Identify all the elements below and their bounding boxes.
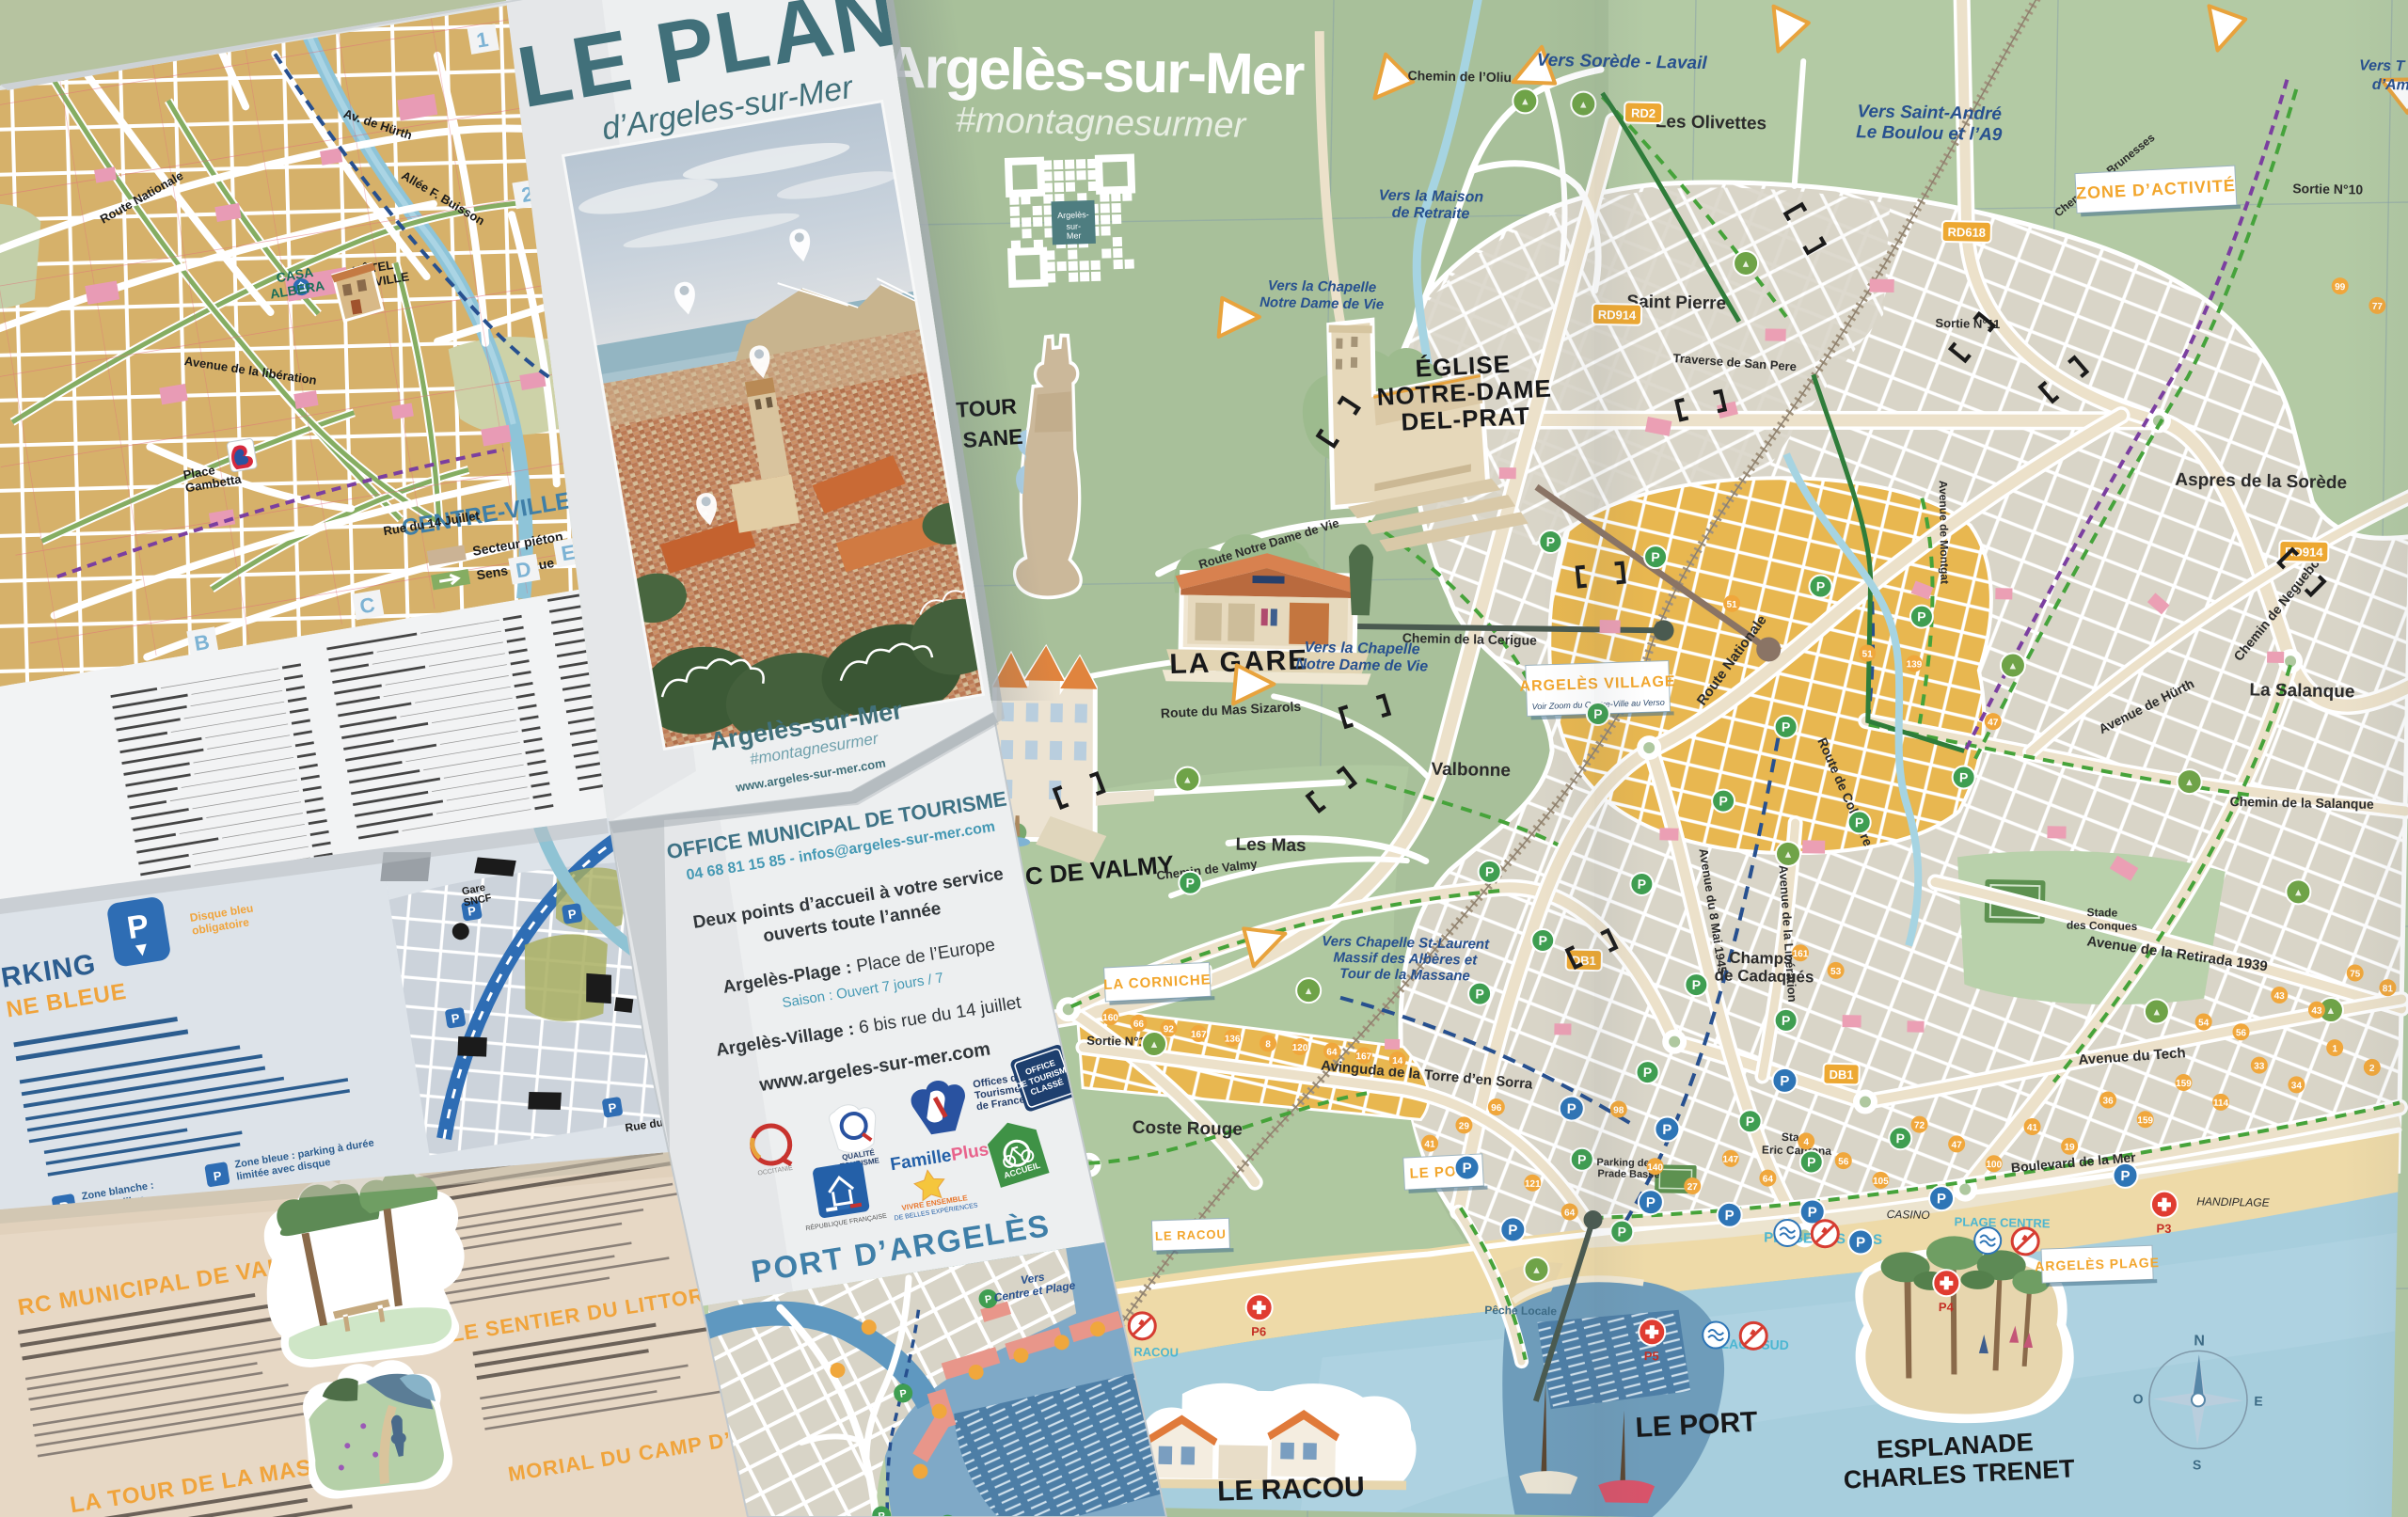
svg-text:▲: ▲	[2325, 1005, 2336, 1017]
svg-text:56: 56	[2236, 1028, 2247, 1038]
svg-text:P3: P3	[2156, 1222, 2171, 1236]
svg-text:56: 56	[1838, 1157, 1849, 1167]
svg-text:36: 36	[2102, 1096, 2114, 1106]
svg-text:27: 27	[1687, 1182, 1699, 1193]
svg-text:53: 53	[1830, 967, 1842, 977]
svg-text:#montagnesurmer: #montagnesurmer	[955, 101, 1246, 146]
svg-text:P: P	[1808, 1205, 1817, 1221]
svg-text:Aspres de la Sorède: Aspres de la Sorède	[2175, 470, 2347, 494]
svg-text:P: P	[1917, 609, 1926, 624]
svg-text:140: 140	[1647, 1162, 1663, 1173]
svg-text:Tour de la Massane: Tour de la Massane	[1339, 966, 1470, 985]
svg-text:92: 92	[1164, 1024, 1175, 1035]
svg-text:114: 114	[2213, 1098, 2229, 1109]
svg-text:14: 14	[1392, 1056, 1403, 1067]
svg-text:51: 51	[1861, 649, 1873, 659]
svg-text:43: 43	[2311, 1006, 2322, 1017]
svg-text:▲: ▲	[1182, 775, 1193, 786]
svg-text:CASINO: CASINO	[1887, 1208, 1930, 1222]
svg-text:33: 33	[2254, 1061, 2265, 1071]
svg-text:41: 41	[2027, 1123, 2038, 1133]
svg-text:19: 19	[2064, 1143, 2075, 1153]
svg-text:64: 64	[1763, 1174, 1774, 1184]
svg-text:▲: ▲	[2293, 887, 2304, 898]
svg-text:▲: ▲	[1304, 986, 1314, 997]
svg-text:des Conques: des Conques	[2067, 919, 2138, 933]
svg-text:P: P	[1651, 549, 1660, 564]
svg-text:121: 121	[1525, 1179, 1541, 1190]
svg-text:167: 167	[1191, 1030, 1207, 1040]
svg-text:47: 47	[1951, 1140, 1962, 1150]
svg-text:▲: ▲	[1520, 96, 1530, 107]
svg-text:51: 51	[1726, 600, 1737, 610]
svg-text:P: P	[1780, 1073, 1789, 1089]
svg-text:P: P	[1692, 977, 1702, 992]
svg-text:▲: ▲	[2151, 1006, 2162, 1018]
svg-text:159: 159	[2176, 1079, 2192, 1089]
svg-text:Mer: Mer	[1067, 230, 1082, 241]
svg-text:4: 4	[1803, 1137, 1809, 1147]
svg-text:▲: ▲	[1741, 259, 1751, 270]
svg-text:de Retraite: de Retraite	[1392, 205, 1470, 223]
svg-text:64: 64	[1326, 1048, 1338, 1058]
svg-text:72: 72	[1914, 1121, 1925, 1131]
svg-text:167: 167	[1355, 1051, 1371, 1062]
svg-text:PLAGE CENTRE: PLAGE CENTRE	[1954, 1214, 2050, 1230]
svg-text:Chemin de l’Oliu: Chemin de l’Oliu	[1407, 68, 1512, 85]
svg-text:1: 1	[2332, 1044, 2337, 1054]
svg-text:O: O	[2132, 1391, 2143, 1406]
svg-text:100: 100	[1986, 1160, 2002, 1170]
svg-text:161: 161	[1793, 949, 1809, 959]
svg-text:LE RACOU: LE RACOU	[1155, 1226, 1227, 1243]
svg-text:147: 147	[1722, 1155, 1738, 1165]
svg-text:Notre Dame de Vie: Notre Dame de Vie	[1259, 294, 1384, 313]
svg-text:P: P	[1782, 1013, 1791, 1028]
svg-text:P: P	[1646, 1195, 1655, 1211]
svg-text:66: 66	[1133, 1019, 1145, 1030]
svg-text:P: P	[1662, 1122, 1671, 1138]
svg-text:P: P	[1719, 794, 1728, 809]
svg-text:136: 136	[1225, 1034, 1241, 1044]
svg-text:N: N	[2194, 1333, 2205, 1349]
svg-text:Chemin de la Cerigue: Chemin de la Cerigue	[1402, 630, 1538, 648]
svg-text:P: P	[1959, 769, 1969, 784]
svg-text:Avenue de Montgat: Avenue de Montgat	[1937, 481, 1952, 584]
svg-text:P: P	[1856, 1235, 1865, 1251]
svg-text:LE RACOU: LE RACOU	[1217, 1472, 1366, 1508]
svg-text:sur-: sur-	[1066, 221, 1081, 231]
svg-text:RD618: RD618	[1947, 225, 1986, 240]
svg-text:E: E	[2254, 1394, 2263, 1409]
svg-text:139: 139	[1906, 659, 1922, 670]
svg-text:▲: ▲	[1782, 849, 1793, 861]
svg-text:120: 120	[1292, 1043, 1308, 1053]
svg-text:54: 54	[2198, 1018, 2210, 1028]
svg-text:159: 159	[2137, 1115, 2153, 1126]
svg-text:Stade: Stade	[2086, 906, 2117, 920]
svg-text:P5: P5	[1644, 1349, 1659, 1363]
svg-text:Le Boulou et l’A9: Le Boulou et l’A9	[1856, 122, 2003, 145]
svg-text:Vers la Chapelle: Vers la Chapelle	[1268, 277, 1377, 295]
svg-text:▲: ▲	[2184, 777, 2194, 788]
svg-text:29: 29	[1459, 1121, 1470, 1131]
svg-text:LE PORT: LE PORT	[1635, 1406, 1759, 1444]
svg-text:Vers Saint-André: Vers Saint-André	[1857, 102, 2002, 124]
svg-text:P: P	[1816, 578, 1826, 593]
svg-text:P: P	[1782, 719, 1791, 735]
svg-text:43: 43	[2274, 991, 2286, 1002]
svg-text:P: P	[1485, 864, 1495, 879]
svg-text:Les Mas: Les Mas	[1235, 835, 1306, 856]
svg-text:41: 41	[1424, 1140, 1435, 1150]
svg-text:P: P	[1186, 876, 1196, 891]
svg-text:P: P	[1724, 1208, 1734, 1224]
svg-text:P: P	[2120, 1168, 2130, 1184]
svg-text:47: 47	[1988, 718, 1999, 728]
svg-text:DB1: DB1	[1829, 1067, 1853, 1082]
svg-text:▲: ▲	[2007, 660, 2018, 672]
svg-text:HANDIPLAGE: HANDIPLAGE	[2196, 1194, 2271, 1209]
svg-text:P: P	[1746, 1114, 1755, 1129]
svg-text:P: P	[1855, 814, 1864, 830]
svg-text:P: P	[1508, 1223, 1517, 1239]
svg-text:P6: P6	[1251, 1324, 1266, 1338]
svg-text:96: 96	[1491, 1103, 1502, 1114]
svg-text:P4: P4	[1939, 1300, 1955, 1314]
svg-text:P: P	[1462, 1161, 1471, 1177]
svg-text:34: 34	[2291, 1081, 2303, 1091]
svg-text:Argelès-: Argelès-	[1057, 210, 1089, 220]
svg-text:Vers la Maison: Vers la Maison	[1379, 187, 1484, 205]
svg-text:E: E	[560, 540, 578, 565]
svg-text:Les Olivettes: Les Olivettes	[1655, 112, 1767, 134]
svg-text:Valbonne: Valbonne	[1431, 760, 1511, 782]
svg-text:8: 8	[1265, 1039, 1271, 1050]
svg-text:160: 160	[1102, 1013, 1118, 1023]
svg-text:P: P	[1937, 1191, 1946, 1207]
svg-text:P: P	[1895, 1130, 1905, 1146]
svg-text:Coste Rouge: Coste Rouge	[1133, 1118, 1244, 1140]
svg-text:P: P	[1475, 987, 1484, 1002]
svg-text:▲: ▲	[1149, 1039, 1159, 1051]
svg-text:105: 105	[1873, 1177, 1889, 1187]
svg-text:La Salanque: La Salanque	[2249, 680, 2354, 702]
svg-text:▲: ▲	[1531, 1265, 1542, 1276]
svg-text:S: S	[2193, 1457, 2202, 1472]
svg-text:Notre Dame de Vie: Notre Dame de Vie	[1295, 656, 1428, 675]
svg-text:P: P	[1807, 1154, 1816, 1169]
